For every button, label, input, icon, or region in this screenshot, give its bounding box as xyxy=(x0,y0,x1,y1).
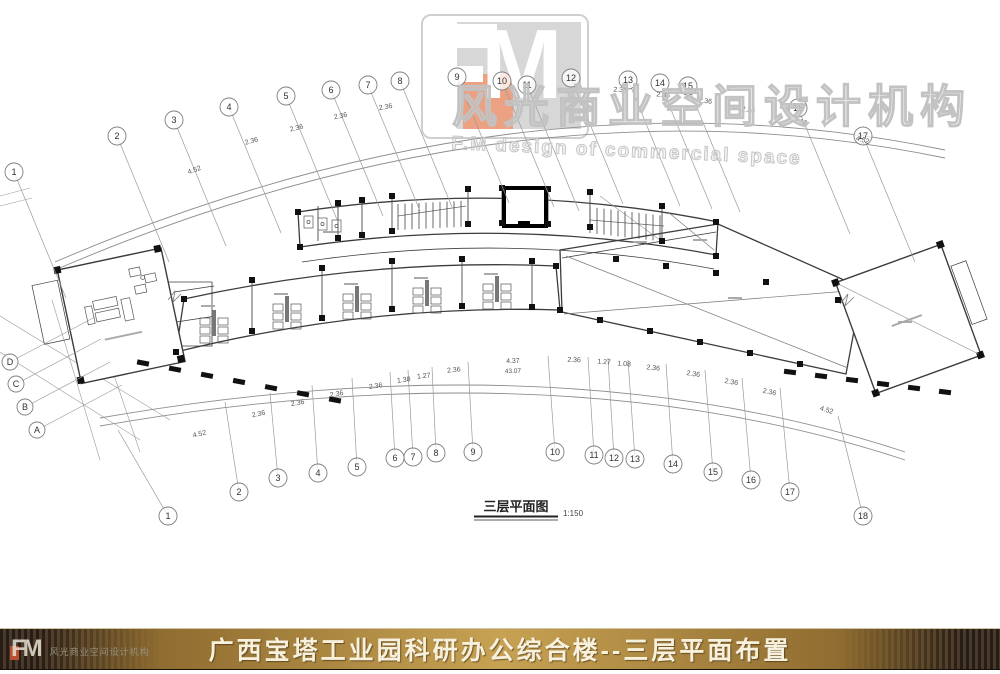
axis-number: 7 xyxy=(365,80,370,90)
desk-spine xyxy=(285,296,289,322)
axis-number: 13 xyxy=(630,454,640,464)
column xyxy=(613,256,619,262)
column xyxy=(529,258,535,264)
dimension-label: 2.36 xyxy=(251,410,266,420)
axis-number: 18 xyxy=(858,511,868,521)
desk-spine xyxy=(425,280,429,306)
dimension-label: 2.36 xyxy=(656,91,670,99)
axis-leader-line xyxy=(666,364,673,464)
column xyxy=(597,317,603,323)
desk xyxy=(291,304,301,311)
column xyxy=(713,219,719,225)
column xyxy=(797,361,803,367)
footer-logo-m: M xyxy=(23,635,40,662)
axis-number: 1 xyxy=(11,167,16,177)
column xyxy=(553,263,559,269)
dimension-label: 1.27 xyxy=(597,359,611,367)
desk xyxy=(431,297,441,304)
column xyxy=(529,304,535,310)
axis-number: 6 xyxy=(328,85,333,95)
axis-number: 3 xyxy=(171,115,176,125)
desk xyxy=(218,318,228,325)
desk xyxy=(483,302,493,309)
colonnade-column xyxy=(201,372,214,379)
room-label-mark xyxy=(633,241,647,243)
axis-number: 11 xyxy=(522,80,531,90)
axis-leader-line xyxy=(117,136,169,262)
axis-number: 17 xyxy=(785,487,795,497)
dimension-label: 2.36 xyxy=(724,378,739,387)
column xyxy=(459,303,465,309)
column xyxy=(389,306,395,312)
desk-spine xyxy=(355,286,359,312)
room-label-mark xyxy=(728,297,742,299)
axis-number: 8 xyxy=(397,76,402,86)
colonnade-column xyxy=(265,384,278,391)
desk xyxy=(200,318,210,325)
axis-leader-line xyxy=(588,357,594,455)
desk xyxy=(361,303,371,310)
column xyxy=(173,349,179,355)
dimension-label: 2.36 xyxy=(762,388,777,398)
column xyxy=(557,307,563,313)
column xyxy=(295,209,301,215)
axis-number: 7 xyxy=(410,452,415,462)
axis-number: 9 xyxy=(470,447,475,457)
dimension-label: 2.36 xyxy=(244,136,259,147)
desk xyxy=(413,297,423,304)
axis-leader-line xyxy=(118,430,168,516)
axis-leader-line xyxy=(688,86,740,212)
toilet-fixtures xyxy=(304,216,341,232)
axis-number: 9 xyxy=(454,72,459,82)
axis-number: B xyxy=(22,402,28,412)
colonnade-column xyxy=(939,389,952,395)
axis-number: 2 xyxy=(114,131,119,141)
colonnade-column xyxy=(784,369,797,375)
axis-leader-line xyxy=(705,370,713,472)
footer-bar: 广西宝塔工业园科研办公综合楼--三层平面布置 xyxy=(0,628,1000,670)
column xyxy=(319,265,325,271)
column xyxy=(297,244,303,250)
column xyxy=(659,203,665,209)
desk xyxy=(483,284,493,291)
desk xyxy=(413,306,423,313)
desk xyxy=(483,293,493,300)
desk xyxy=(501,284,511,291)
axis-leader-line xyxy=(225,402,239,492)
desk-spine xyxy=(212,310,216,336)
dimension-label: 2.36 xyxy=(793,118,808,128)
colonnade-column xyxy=(846,377,859,383)
desk xyxy=(273,313,283,320)
column xyxy=(663,263,669,269)
axis-number: 10 xyxy=(550,447,560,457)
axis-number: 1 xyxy=(165,511,170,521)
column xyxy=(389,228,395,234)
axis-leader-line xyxy=(742,378,751,480)
column xyxy=(389,193,395,199)
column xyxy=(545,221,551,227)
dimension-label: 2.36 xyxy=(567,357,581,364)
column xyxy=(335,235,341,241)
column xyxy=(181,296,187,302)
column xyxy=(647,328,653,334)
column xyxy=(249,328,255,334)
axis-leader-line xyxy=(838,416,863,516)
axis-number: 5 xyxy=(283,91,288,101)
axis-number: 15 xyxy=(683,81,693,91)
axis-leader-line xyxy=(229,107,281,233)
dimension-label: 2.36 xyxy=(646,364,660,372)
footer-logo-text: 风光商业空间设计机构 xyxy=(50,645,150,658)
column xyxy=(319,315,325,321)
footer-logo-f: F xyxy=(11,635,23,662)
column xyxy=(359,232,365,238)
axis-leader-line xyxy=(863,136,915,262)
desk xyxy=(273,304,283,311)
axis-number: 6 xyxy=(392,453,397,463)
axis-leader-line xyxy=(608,358,614,458)
column xyxy=(587,224,593,230)
floor-plan-svg: 1234567891011121314151617 12345678910111… xyxy=(0,0,1000,620)
axis-leader-line xyxy=(432,367,436,453)
axis-leader-line xyxy=(174,120,226,246)
desk xyxy=(218,327,228,334)
axis-number: 3 xyxy=(275,473,280,483)
axis-number: 8 xyxy=(433,448,438,458)
desk xyxy=(200,336,210,343)
axis-number: 12 xyxy=(566,73,576,83)
room-label-mark xyxy=(484,273,498,275)
column xyxy=(835,297,841,303)
axis-number: 14 xyxy=(668,459,678,469)
dimension-label: 1.27 xyxy=(417,372,431,380)
room-label-mark xyxy=(323,231,337,233)
terrace-colonnade xyxy=(137,359,952,403)
colonnade-column xyxy=(169,366,182,373)
axis-number: 15 xyxy=(708,467,718,477)
column xyxy=(465,221,471,227)
axis-leader-line xyxy=(628,360,635,459)
axis-leader-line xyxy=(571,78,623,204)
column xyxy=(763,279,769,285)
footer-logo-letters: FM xyxy=(11,635,40,663)
column xyxy=(465,186,471,192)
dimension-label: 2.36 xyxy=(741,106,756,115)
axis-number: 11 xyxy=(589,450,598,460)
bottom-dimension-arc xyxy=(100,385,905,460)
elevator-shaft xyxy=(504,188,546,226)
axis-number: 16 xyxy=(793,103,803,113)
room-label-mark xyxy=(693,239,707,241)
dimension-label: 2.36 xyxy=(698,97,712,106)
plan-title-block: 三层平面图 1:150 xyxy=(474,499,584,520)
plan-scale: 1:150 xyxy=(563,509,584,518)
axis-number: 4 xyxy=(315,468,320,478)
axis-number: 4 xyxy=(226,102,231,112)
dimension-label: 2.36 xyxy=(686,370,701,379)
colonnade-column xyxy=(908,385,921,391)
dimension-label: 2.36 xyxy=(329,390,344,399)
column xyxy=(335,200,341,206)
desk xyxy=(200,327,210,334)
desk xyxy=(343,294,353,301)
dimension-label: 4.37 xyxy=(506,358,520,365)
desk xyxy=(343,303,353,310)
axis-leader-line xyxy=(14,172,66,298)
axis-number: 10 xyxy=(497,76,507,86)
axis-number: A xyxy=(34,425,40,435)
axis-leader-line xyxy=(548,356,555,452)
desk xyxy=(361,294,371,301)
desk xyxy=(343,312,353,319)
dimension-label: 4.52 xyxy=(187,165,202,176)
plan-title: 三层平面图 xyxy=(483,499,548,514)
dimension-label: 1.08 xyxy=(617,361,631,369)
desk xyxy=(431,288,441,295)
axis-leader-line xyxy=(352,378,357,467)
axis-number: 16 xyxy=(746,475,756,485)
axis-leader-line xyxy=(390,372,395,458)
axis-leader-line xyxy=(25,362,110,407)
dimension-label: 43.07 xyxy=(505,368,522,376)
axis-leader-line xyxy=(331,90,383,216)
axis-leader-line xyxy=(628,80,680,206)
axis-leader-line xyxy=(270,393,278,478)
axis-number: 12 xyxy=(609,453,619,463)
column xyxy=(499,220,505,226)
column xyxy=(713,270,719,276)
room-label-mark xyxy=(344,283,358,285)
column xyxy=(459,256,465,262)
room-label-mark xyxy=(414,277,428,279)
axis-number: 14 xyxy=(655,78,665,88)
dimension-label: 4.52 xyxy=(819,405,834,416)
desk-spine xyxy=(495,276,499,302)
dimension-label: 2.36 xyxy=(378,103,393,112)
axis-leader-line xyxy=(780,388,790,492)
axis-leader-line xyxy=(368,85,420,211)
room-label-mark xyxy=(898,321,912,323)
desk xyxy=(273,322,283,329)
column xyxy=(359,197,365,203)
dimension-label: 2.36 xyxy=(369,382,384,391)
colonnade-column xyxy=(233,378,246,385)
axis-leader-line xyxy=(468,362,473,452)
dimension-label: 2.36 xyxy=(613,87,627,95)
room-label-mark xyxy=(201,305,215,307)
drawing-sheet: M 风光商业空间设计机构 F.M design of commercial sp… xyxy=(0,0,1000,674)
column xyxy=(587,189,593,195)
axis-number: C xyxy=(13,379,20,389)
desk xyxy=(413,288,423,295)
dimension-label: 2.36 xyxy=(447,366,461,374)
desk xyxy=(501,293,511,300)
axis-number: D xyxy=(7,357,14,367)
column xyxy=(389,258,395,264)
desk xyxy=(291,313,301,320)
footer-logo: FM 风光商业空间设计机构 xyxy=(10,634,150,664)
axis-number: 13 xyxy=(623,75,633,85)
axis-leader-line xyxy=(286,96,338,222)
column xyxy=(697,339,703,345)
dimension-label: 4.52 xyxy=(192,429,207,439)
dimension-label: 2.36 xyxy=(289,123,304,133)
axis-number: 2 xyxy=(236,487,241,497)
sheet-title: 广西宝塔工业园科研办公综合楼--三层平面布置 xyxy=(0,629,1000,669)
colonnade-column xyxy=(815,373,828,379)
dimension-label: 2.36 xyxy=(333,112,348,122)
column xyxy=(713,253,719,259)
dimension-label: 2.36 xyxy=(290,399,305,408)
column xyxy=(747,350,753,356)
column xyxy=(659,238,665,244)
right-pavilion xyxy=(831,235,999,398)
axis-number: 5 xyxy=(354,462,359,472)
column xyxy=(249,277,255,283)
room-label-mark xyxy=(274,293,288,295)
desk xyxy=(501,302,511,309)
